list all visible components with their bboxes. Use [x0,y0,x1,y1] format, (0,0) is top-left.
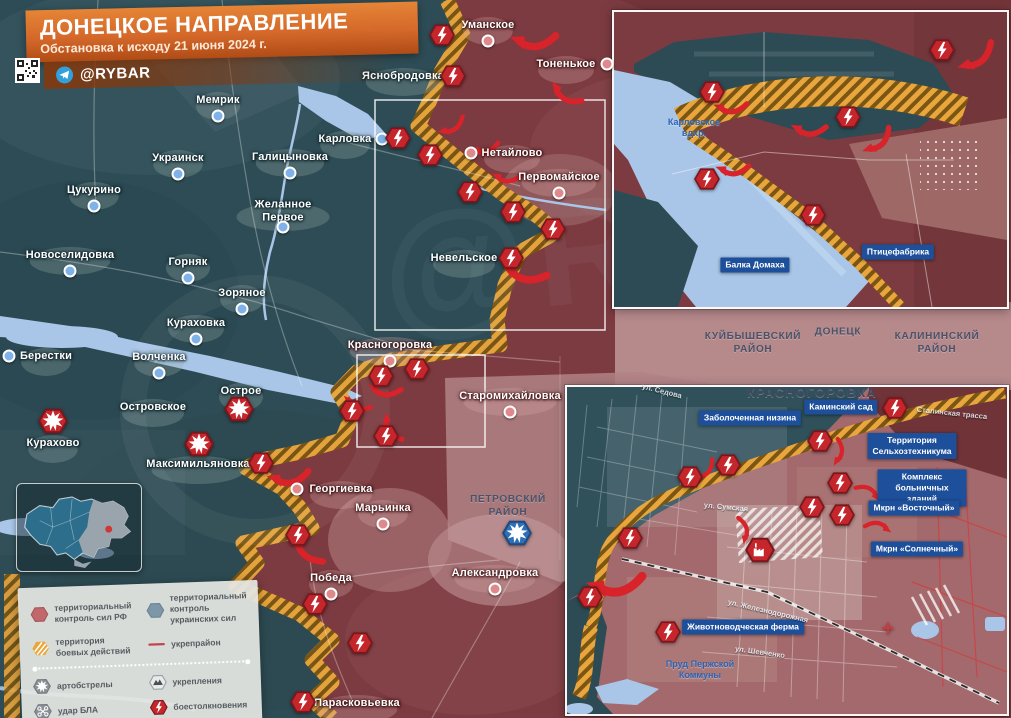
map-canvas: @RYBAR [0,0,1011,718]
telegram-icon [56,66,73,83]
legend-item: удар БЛА [34,699,142,718]
drone-strike-icon [34,702,53,718]
ru-control-icon [30,605,49,624]
ua-control-icon [146,601,165,620]
clash-legend-icon [149,698,168,717]
map-legend: территориальный контроль сил РФтерритори… [18,580,263,718]
legend-item-label: артобстрелы [57,679,113,692]
legend-divider [34,660,248,669]
combat-zone-icon [31,639,50,658]
ukraine-minimap [16,483,142,572]
fortification-icon [148,673,167,692]
legend-item: боестолкновения [149,695,252,717]
legend-item-label: территория боевых действий [55,634,139,659]
shelling-legend-icon [33,677,52,696]
channel-name: @RYBAR [80,65,151,84]
qr-code [15,58,40,83]
legend-item: территориальный контроль украинских сил [145,590,249,627]
legend-item-label: территориальный контроль сил РФ [54,600,138,625]
legend-item-label: укрепления [172,675,222,688]
donetsk-area-dot [105,526,112,533]
inset-map-krasnohorivka [565,385,1009,716]
title-banner: ДОНЕЦКОЕ НАПРАВЛЕНИЕ Обстановка к исходу… [25,2,418,63]
legend-item: укрепрайон [147,630,250,656]
legend-item-label: удар БЛА [58,704,99,716]
legend-item-label: территориальный контроль украинских сил [169,590,249,626]
inset-map-karlovka [612,10,1009,309]
legend-item-label: укрепрайон [171,637,221,650]
fortified-line-icon [147,635,166,654]
legend-item: территориальный контроль сил РФ [30,594,139,631]
legend-item: укрепления [148,670,251,692]
legend-item: территория боевых действий [31,634,139,660]
legend-item-label: боестолкновения [173,699,247,713]
legend-item: артобстрелы [33,674,141,696]
